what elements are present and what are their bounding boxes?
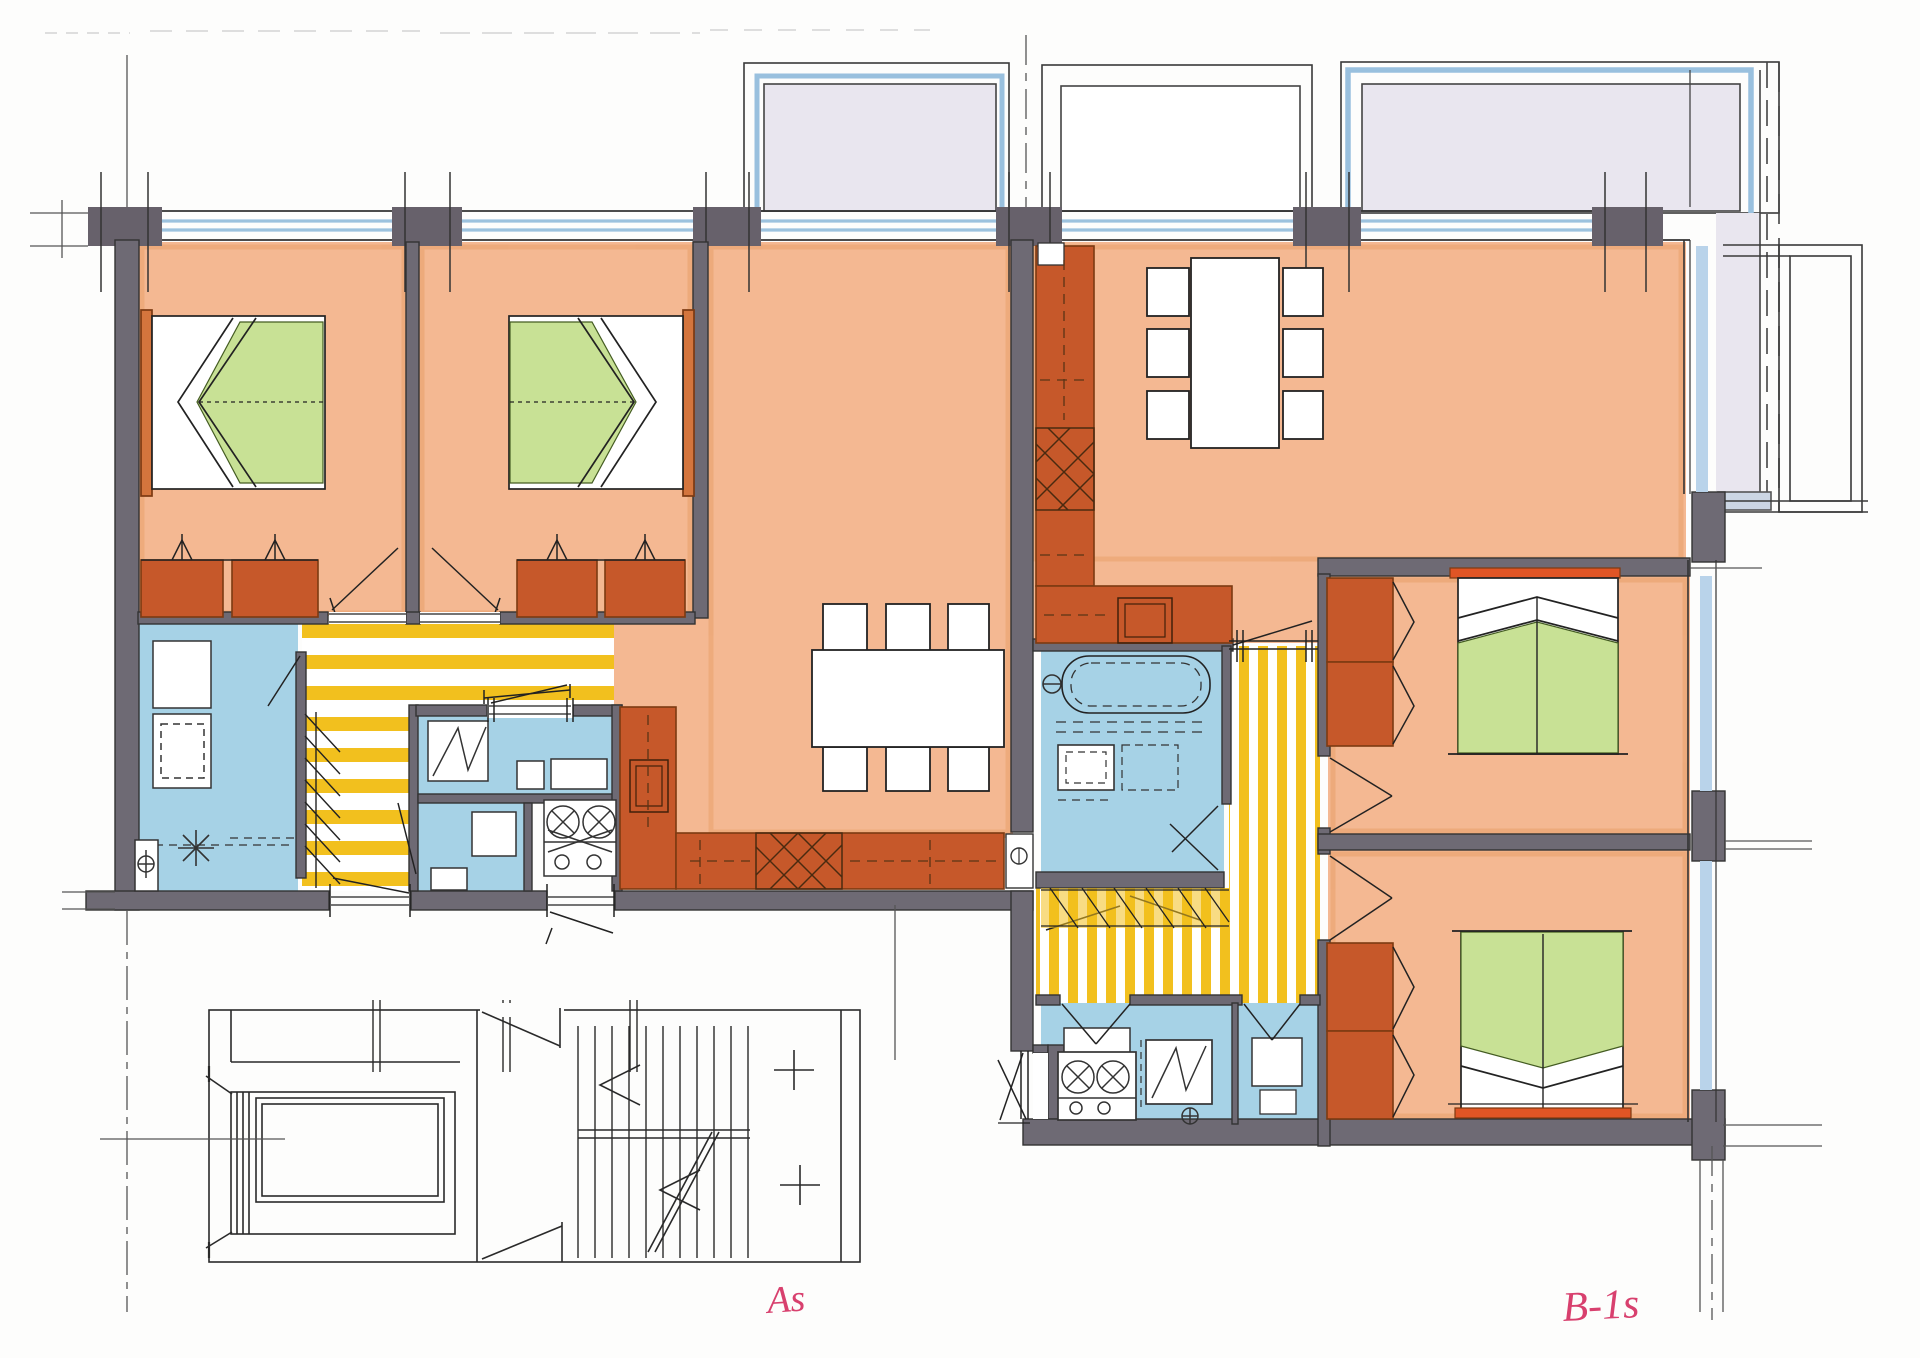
svg-text:As: As xyxy=(763,1277,807,1322)
svg-text:B-1s: B-1s xyxy=(1561,1281,1640,1331)
